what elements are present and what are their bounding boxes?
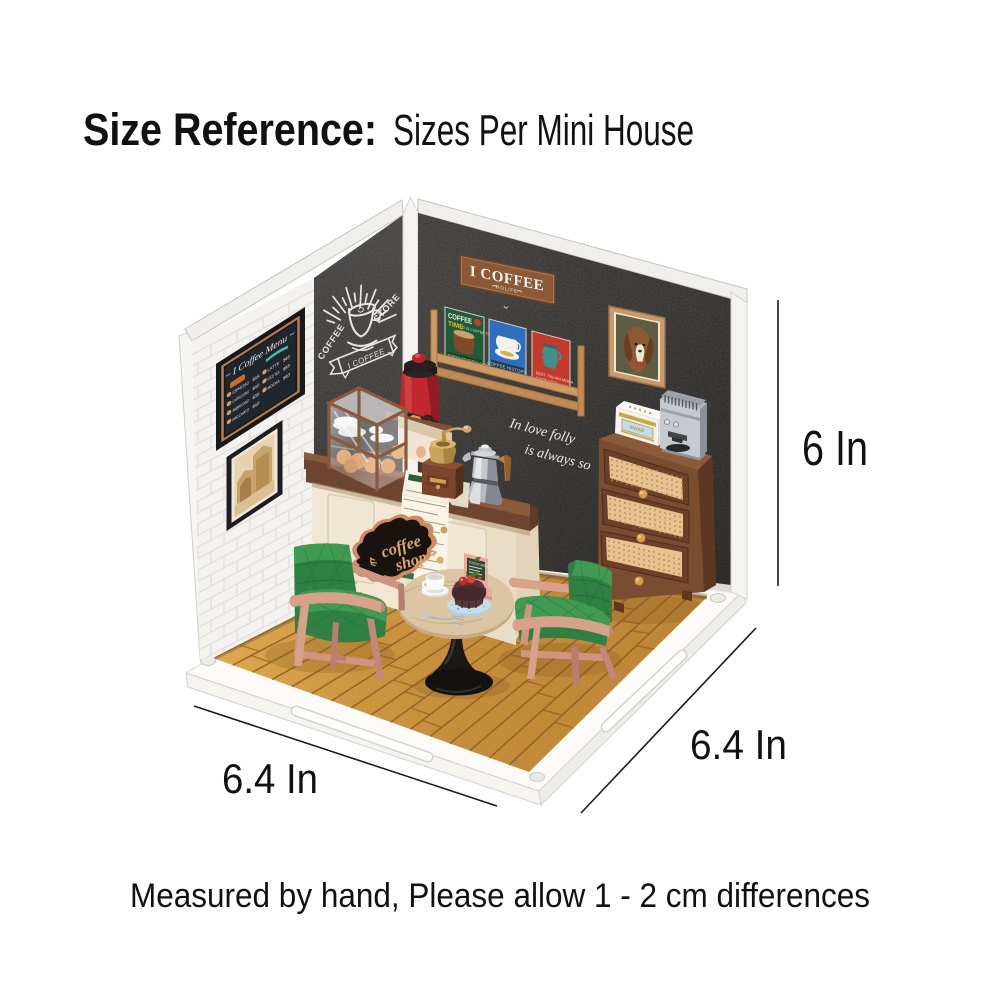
svg-text:Sizes Per Mini House: Sizes Per Mini House [393, 106, 694, 155]
svg-text:6 In: 6 In [802, 422, 868, 476]
svg-text:Size Reference:: Size Reference: [83, 104, 377, 155]
svg-text:Measured by hand, Please allow: Measured by hand, Please allow 1 - 2 cm … [130, 877, 870, 915]
svg-text:6.4 In: 6.4 In [690, 721, 787, 768]
svg-text:6.4 In: 6.4 In [222, 755, 318, 802]
